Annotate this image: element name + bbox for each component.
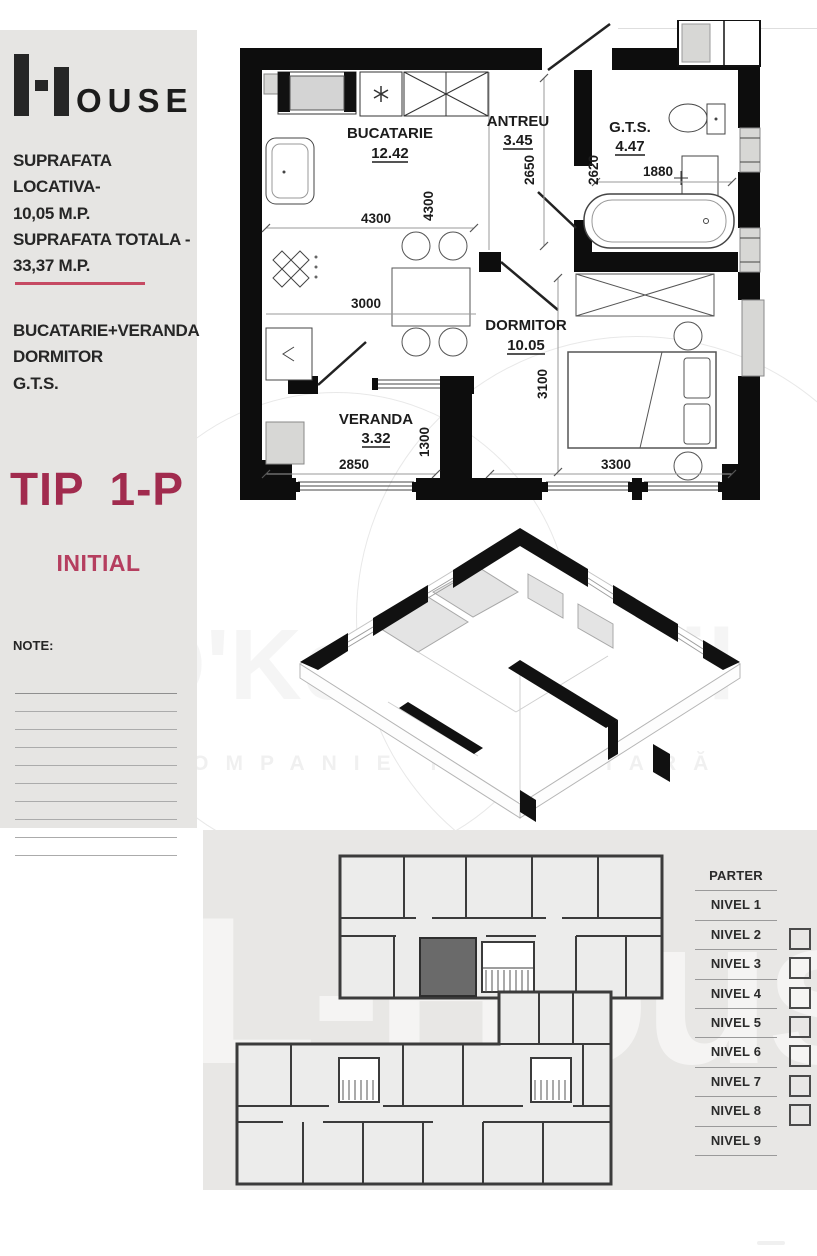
right-windows [740, 128, 764, 376]
level-row-nivel-2: NIVEL 2 [697, 923, 775, 952]
bedroom-furniture [568, 274, 716, 480]
dim-label: 3300 [601, 457, 631, 472]
level-label-nivel-2: NIVEL 2 [697, 927, 775, 942]
dim-label: 2650 [522, 155, 537, 185]
note-line [15, 838, 177, 856]
sidebar: OUSE SUPRAFATA LOCATIVA- 10,05 M.P. SUPR… [0, 30, 197, 828]
veranda-storage [266, 422, 304, 464]
brand-logo: OUSE [12, 54, 188, 120]
level-selector: PARTERNIVEL 1NIVEL 2NIVEL 3NIVEL 4NIVEL … [697, 864, 817, 1158]
level-label-nivel-9: NIVEL 9 [697, 1133, 775, 1148]
level-underline [695, 949, 777, 950]
logo-text: OUSE [76, 82, 188, 119]
dim-label: 2850 [339, 457, 369, 472]
level-label-nivel-7: NIVEL 7 [697, 1074, 775, 1089]
room-label: DORMITOR [485, 317, 567, 334]
stair-core [339, 1058, 379, 1102]
surface-line: SUPRAFATA TOTALA - [13, 227, 197, 253]
note-line [15, 748, 177, 766]
level-checkbox-nivel-3[interactable] [789, 957, 811, 979]
stair-core [531, 1058, 571, 1102]
note-label: NOTE: [13, 638, 53, 653]
note-lines [15, 676, 177, 856]
logo-bar-icon [14, 54, 29, 116]
level-label-nivel-3: NIVEL 3 [697, 956, 775, 971]
room-area: 3.45 [503, 132, 532, 149]
room-label: G.T.S. [609, 119, 651, 136]
level-checkbox-nivel-4[interactable] [789, 987, 811, 1009]
logo-dash-icon [35, 80, 48, 91]
note-line [15, 784, 177, 802]
dim-label: 3100 [535, 369, 550, 399]
level-row-nivel-3: NIVEL 3 [697, 952, 775, 981]
room-list-item: BUCATARIE+VERANDA [13, 318, 199, 344]
level-underline [695, 1126, 777, 1127]
dim-label: 3000 [351, 296, 381, 311]
room-area: 4.47 [615, 138, 644, 155]
kitchen-furniture [264, 72, 489, 380]
level-label-nivel-1: NIVEL 1 [697, 897, 775, 912]
level-underline [695, 1037, 777, 1038]
surface-line: 10,05 M.P. [13, 201, 197, 227]
building-plan-upper [336, 852, 666, 1002]
room-label: ANTREU [487, 113, 550, 130]
building-plan-lower [233, 988, 633, 1188]
level-row-nivel-6: NIVEL 6 [697, 1040, 775, 1069]
level-underline [695, 979, 777, 980]
dim-label: 4300 [421, 191, 436, 221]
level-label-parter: PARTER [697, 868, 775, 883]
note-line [15, 766, 177, 784]
level-row-nivel-1: NIVEL 1 [697, 893, 775, 922]
room-list: BUCATARIE+VERANDA DORMITOR G.T.S. [13, 318, 199, 397]
dim-label: 1300 [417, 427, 432, 457]
level-underline [695, 890, 777, 891]
surface-line: SUPRAFATA LOCATIVA- [13, 148, 197, 201]
level-label-nivel-5: NIVEL 5 [697, 1015, 775, 1030]
level-checkbox-nivel-6[interactable] [789, 1045, 811, 1067]
dim-label: 4300 [361, 211, 391, 226]
level-checkbox-nivel-2[interactable] [789, 928, 811, 950]
balcony-top [678, 20, 760, 66]
level-row-parter: PARTER [697, 864, 775, 893]
room-area: 3.32 [361, 430, 390, 447]
room-list-item: DORMITOR [13, 344, 199, 370]
level-checkbox-nivel-5[interactable] [789, 1016, 811, 1038]
level-underline [695, 1067, 777, 1068]
stove-icon [273, 251, 309, 287]
floor-plan-2d: BUCATARIE 12.42 ANTREU 3.45 G.T.S. 4.47 … [226, 20, 771, 520]
phase-label: INITIAL [0, 550, 197, 577]
level-underline [695, 1096, 777, 1097]
room-label: BUCATARIE [347, 125, 433, 142]
stair-core [482, 942, 534, 992]
level-row-nivel-5: NIVEL 5 [697, 1011, 775, 1040]
page-artifact [757, 1241, 785, 1245]
surface-info: SUPRAFATA LOCATIVA- 10,05 M.P. SUPRAFATA… [13, 148, 197, 280]
room-label: VERANDA [339, 411, 413, 428]
room-area: 10.05 [507, 337, 545, 354]
level-label-nivel-8: NIVEL 8 [697, 1103, 775, 1118]
logo-bar-icon [54, 67, 69, 116]
level-row-nivel-9: NIVEL 9 [697, 1129, 775, 1158]
building-section: L-House [203, 830, 817, 1190]
note-line [15, 676, 177, 694]
room-area: 12.42 [371, 145, 409, 162]
note-line [15, 712, 177, 730]
surface-line: 33,37 M.P. [13, 253, 197, 279]
note-line [15, 820, 177, 838]
room-list-item: G.T.S. [13, 371, 199, 397]
apartment-type-label: TIP 1-P [10, 462, 184, 516]
note-line [15, 694, 177, 712]
level-checkbox-nivel-7[interactable] [789, 1075, 811, 1097]
level-underline [695, 920, 777, 921]
level-row-nivel-7: NIVEL 7 [697, 1070, 775, 1099]
page: O'Key Imobil COMPANIE IMOBILIARĂ OUSE SU… [0, 0, 817, 1256]
note-line [15, 802, 177, 820]
level-row-nivel-8: NIVEL 8 [697, 1099, 775, 1128]
level-row-nivel-4: NIVEL 4 [697, 982, 775, 1011]
floor-plan-3d [278, 512, 763, 837]
level-checkbox-nivel-8[interactable] [789, 1104, 811, 1126]
level-underline [695, 1155, 777, 1156]
note-line [15, 730, 177, 748]
dim-label: 2620 [586, 155, 601, 185]
level-underline [695, 1008, 777, 1009]
accent-divider [15, 282, 145, 285]
level-label-nivel-4: NIVEL 4 [697, 986, 775, 1001]
dim-label: 1880 [643, 164, 673, 179]
level-label-nivel-6: NIVEL 6 [697, 1044, 775, 1059]
